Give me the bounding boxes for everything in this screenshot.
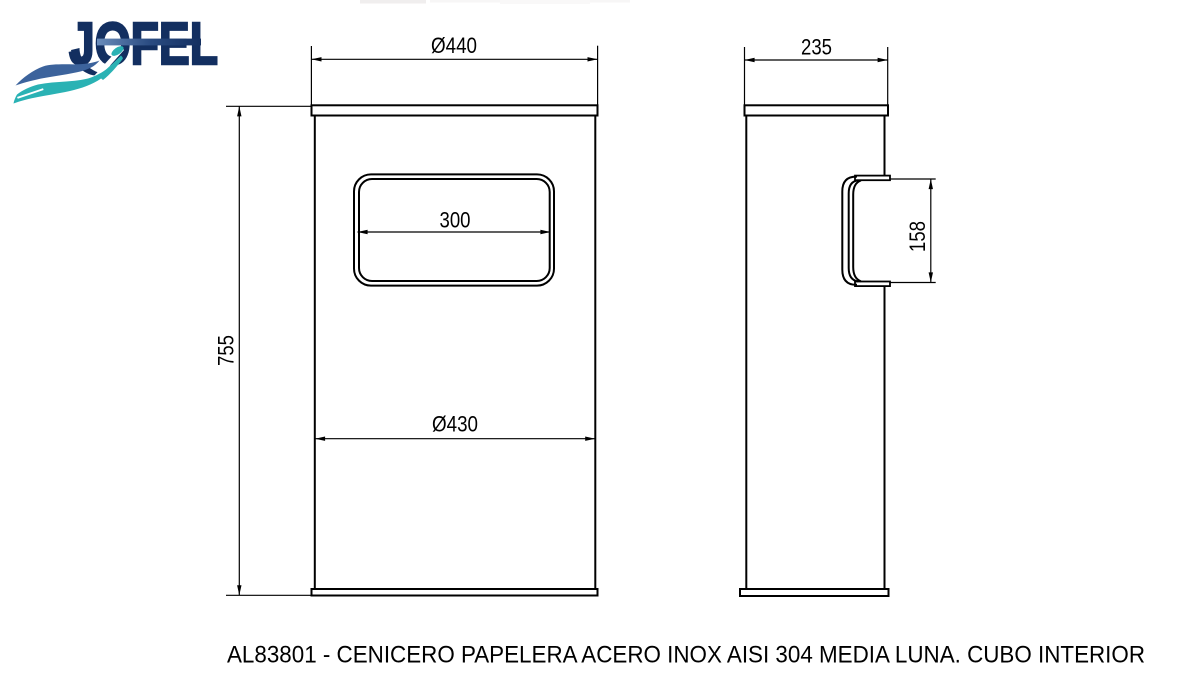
svg-text:AL83801 - CENICERO PAPELERA AC: AL83801 - CENICERO PAPELERA ACERO INOX A… [227,642,1145,669]
svg-text:755: 755 [214,335,239,366]
svg-text:235: 235 [801,35,832,60]
svg-text:Ø440: Ø440 [431,33,477,58]
svg-text:Ø430: Ø430 [432,411,478,436]
svg-text:158: 158 [905,221,930,252]
svg-text:300: 300 [440,208,471,233]
